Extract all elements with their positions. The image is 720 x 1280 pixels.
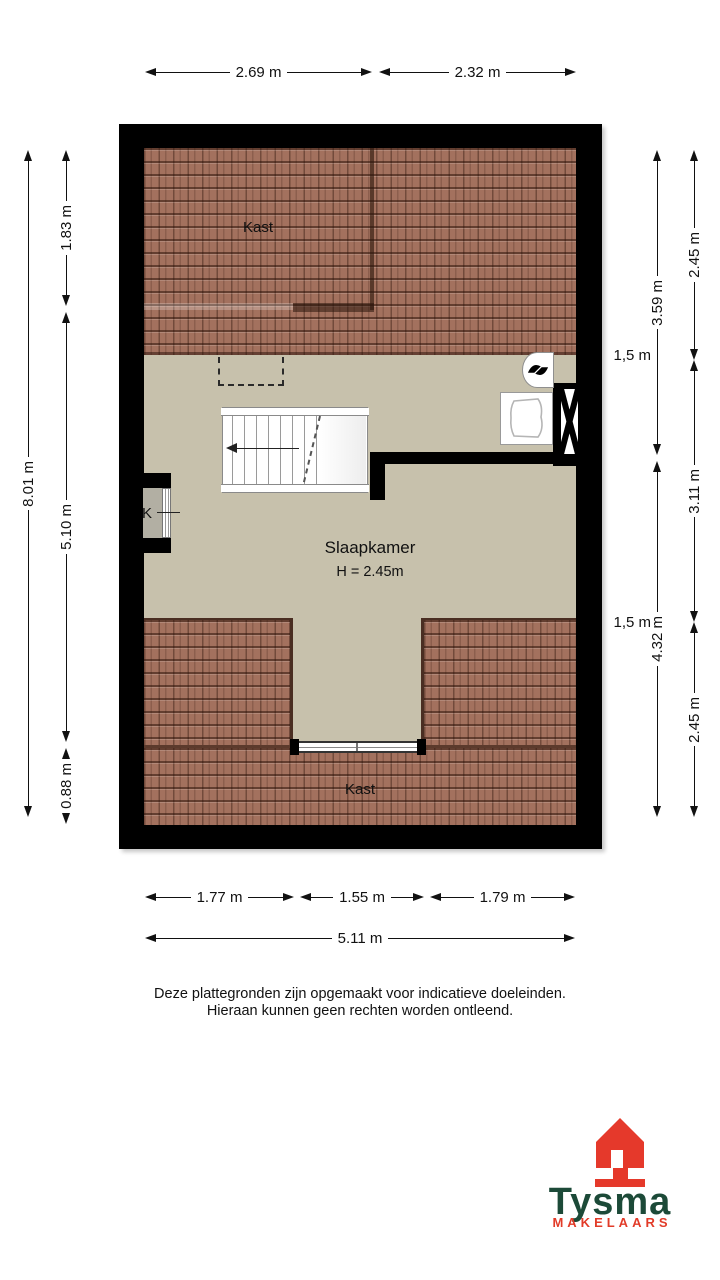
- dimension-label: 2.45 m: [686, 693, 703, 747]
- dimension-label: 0.88 m: [58, 759, 75, 813]
- headroom-dashed-outline: [218, 357, 284, 386]
- dimension-line: [657, 161, 658, 276]
- closet-wall-bottom: [143, 538, 171, 553]
- interior-wall-horizontal: [370, 452, 576, 464]
- dimension: 2.69 m: [145, 63, 372, 81]
- dimension: 1.55 m: [300, 888, 424, 906]
- dimension: 1.83 m: [57, 150, 75, 306]
- closet-door: [162, 488, 171, 538]
- arrowhead-icon: [62, 813, 70, 824]
- disclaimer-line1: Deze plattegronden zijn opgemaakt voor i…: [0, 986, 720, 1003]
- shaft-x-marker: [561, 389, 578, 454]
- dimension-label: 5.10 m: [58, 500, 75, 554]
- arrowhead-icon: [62, 150, 70, 161]
- arrowhead-icon: [24, 806, 32, 817]
- dimension-line: [156, 897, 191, 898]
- washbasin-icon: [501, 393, 552, 444]
- roof-step-line: [293, 303, 374, 312]
- disclaimer-line2: Hieraan kunnen geen rechten worden ontle…: [0, 1003, 720, 1020]
- dimension-line: [66, 554, 67, 731]
- dimension-line: [66, 323, 67, 500]
- room-height-label: H = 2.45m: [290, 564, 450, 580]
- dimension: 5.11 m: [145, 929, 575, 947]
- stair-direction-line: [233, 448, 299, 449]
- roof-area-top: [144, 148, 576, 355]
- dimension: 2.32 m: [379, 63, 576, 81]
- dimension: 4.32 m: [648, 461, 666, 817]
- dimension-line: [441, 897, 474, 898]
- arrowhead-icon: [690, 611, 698, 622]
- arrowhead-icon: [430, 893, 441, 901]
- closet-leader-line: [157, 512, 180, 513]
- logo-house-icon: [594, 1113, 646, 1188]
- dimension-label: 2.69 m: [230, 64, 288, 81]
- arrowhead-icon: [690, 150, 698, 161]
- dimension-line: [66, 255, 67, 295]
- arrowhead-icon: [379, 68, 390, 76]
- dimension-line: [388, 938, 564, 939]
- dimension-line: [694, 633, 695, 693]
- window-post-left: [290, 739, 299, 755]
- dimension: 1.79 m: [430, 888, 575, 906]
- arrowhead-icon: [564, 934, 575, 942]
- roof-ridge-line: [370, 148, 374, 310]
- ventilation-unit: [522, 352, 554, 388]
- dimension: 8.01 m: [19, 150, 37, 817]
- room-label-kast-top: Kast: [208, 219, 308, 236]
- arrowhead-icon: [413, 893, 424, 901]
- disclaimer: Deze plattegronden zijn opgemaakt voor i…: [0, 986, 720, 1019]
- dimension-line: [694, 371, 695, 465]
- room-label-slaapkamer: Slaapkamer: [270, 538, 470, 558]
- dimension-label: 1.77 m: [191, 889, 249, 906]
- dimension-line: [531, 897, 564, 898]
- arrowhead-icon: [300, 893, 311, 901]
- stair-diagonal-line: [223, 408, 369, 494]
- arrowhead-icon: [653, 806, 661, 817]
- dimension-line: [156, 938, 332, 939]
- staircase: [222, 407, 368, 493]
- arrowhead-icon: [361, 68, 372, 76]
- arrowhead-icon: [690, 622, 698, 633]
- dimension-label: 2.32 m: [449, 64, 507, 81]
- closet-label: K: [133, 505, 161, 522]
- fan-icon: [525, 359, 551, 381]
- dimension-label: 1.55 m: [333, 889, 391, 906]
- roof-area-bottom-right: [421, 618, 576, 745]
- washbasin: [500, 392, 553, 445]
- dimension-line: [390, 72, 449, 73]
- dimension-line: [657, 472, 658, 612]
- window-post-right: [417, 739, 426, 755]
- dimension-label: 4.32 m: [649, 612, 666, 666]
- dimension-line: [28, 510, 29, 806]
- room-label-kast-bottom: Kast: [310, 781, 410, 798]
- dimension-line: [506, 72, 565, 73]
- clearance-label: 1,5 m: [581, 614, 651, 631]
- dimension: 3.59 m: [648, 150, 666, 455]
- dimension: 2.45 m: [685, 622, 703, 817]
- dimension-label: 8.01 m: [20, 457, 37, 511]
- arrowhead-icon: [653, 461, 661, 472]
- dimension: 2.45 m: [685, 150, 703, 360]
- roof-bottom-edge: [144, 352, 576, 355]
- dimension-line: [66, 161, 67, 201]
- arrowhead-icon: [565, 68, 576, 76]
- logo-tagline-text: MAKELAARS: [512, 1215, 712, 1230]
- clearance-label: 1,5 m: [581, 347, 651, 364]
- dimension-line: [156, 72, 230, 73]
- dimension: 0.88 m: [57, 748, 75, 817]
- arrowhead-icon: [62, 312, 70, 323]
- x-cross-icon: [561, 389, 578, 454]
- dormer-window: [299, 741, 417, 753]
- arrowhead-icon: [62, 731, 70, 742]
- arrowhead-icon: [690, 349, 698, 360]
- dimension-line: [657, 329, 658, 444]
- dimension-line: [28, 161, 29, 457]
- dimension-label: 3.11 m: [686, 465, 703, 518]
- roof-area-bottom-left: [144, 618, 293, 745]
- arrowhead-icon: [62, 295, 70, 306]
- arrowhead-icon: [690, 360, 698, 371]
- closet-wall-top: [143, 473, 171, 488]
- dimension: 5.10 m: [57, 312, 75, 742]
- window-mullion: [356, 743, 358, 751]
- arrowhead-icon: [24, 150, 32, 161]
- arrowhead-icon: [653, 444, 661, 455]
- dimension-line: [311, 897, 333, 898]
- dimension: 1.77 m: [145, 888, 294, 906]
- dimension-line: [287, 72, 361, 73]
- dimension-label: 3.59 m: [649, 276, 666, 330]
- arrowhead-icon: [145, 68, 156, 76]
- dimension: 3.11 m: [685, 360, 703, 622]
- dimension-line: [694, 517, 695, 611]
- dimension-line: [391, 897, 413, 898]
- arrowhead-icon: [145, 893, 156, 901]
- dimension-label: 5.11 m: [332, 930, 389, 947]
- arrowhead-icon: [690, 806, 698, 817]
- dimension-label: 1.79 m: [474, 889, 532, 906]
- arrowhead-icon: [653, 150, 661, 161]
- window-glass-line: [299, 747, 417, 748]
- roof-highlight-line: [144, 303, 293, 310]
- dimension-label: 1.83 m: [58, 201, 75, 255]
- arrowhead-icon: [564, 893, 575, 901]
- dimension-label: 2.45 m: [686, 228, 703, 282]
- dimension-line: [248, 897, 283, 898]
- stair-direction-arrow-icon: [226, 443, 237, 453]
- dimension-line: [657, 666, 658, 806]
- interior-wall-stub: [370, 452, 385, 500]
- dimension-line: [694, 746, 695, 806]
- arrowhead-icon: [145, 934, 156, 942]
- arrowhead-icon: [62, 748, 70, 759]
- arrowhead-icon: [283, 893, 294, 901]
- dimension-line: [694, 282, 695, 349]
- dimension-line: [694, 161, 695, 228]
- floorplan: Kast: [119, 124, 602, 849]
- floorplan-page: Kast: [0, 0, 720, 1280]
